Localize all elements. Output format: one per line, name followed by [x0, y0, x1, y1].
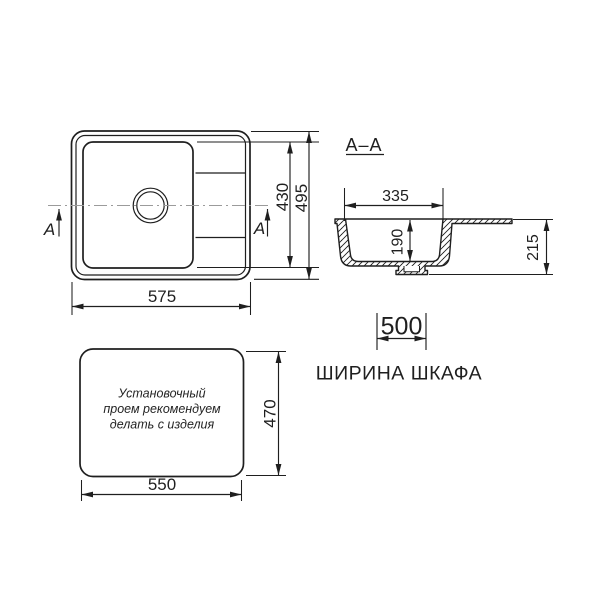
section-view: A–A 335 190 215 [335, 135, 553, 275]
dim-value-335: 335 [382, 188, 409, 205]
dim-value-215: 215 [525, 234, 542, 261]
dimension-cutout-width: 550 [82, 475, 242, 501]
dim-value-430: 430 [273, 183, 292, 211]
cabinet-width-label: ШИРИНА ШКАФА [316, 363, 482, 385]
install-note-line2: проем рекомендуем [103, 402, 221, 416]
section-body [335, 219, 512, 275]
section-marker-letter: A [253, 219, 265, 238]
cabinet-width-note: 500 ШИРИНА ШКАФА [316, 313, 482, 385]
section-marker-left: A [43, 209, 59, 239]
drain-outlet [404, 266, 420, 272]
install-note-line3: делать с изделия [110, 418, 215, 432]
top-view: A A 575 430 495 [43, 131, 319, 315]
install-cutout-view: Установочный проем рекомендуем делать с … [80, 349, 286, 501]
dim-value-495: 495 [292, 184, 311, 212]
dimension-bowl-depth: 190 [390, 220, 411, 262]
section-marker-right: A [253, 209, 268, 238]
dim-value-500: 500 [381, 313, 423, 341]
install-note-line1: Установочный [117, 387, 205, 401]
drawing-canvas: A A 575 430 495 A–A [0, 0, 600, 600]
dim-value-190: 190 [390, 229, 407, 256]
dimension-sink-width: 575 [72, 282, 251, 315]
section-title: A–A [345, 135, 382, 155]
dim-value-470: 470 [261, 399, 280, 427]
dim-value-575: 575 [148, 287, 176, 306]
dim-value-550: 550 [148, 475, 176, 494]
dimension-cutout-depth: 470 [246, 352, 286, 476]
dimension-bowl-width: 335 [345, 188, 444, 221]
section-marker-letter: A [43, 220, 55, 239]
sink-technical-drawing: A A 575 430 495 A–A [0, 0, 600, 600]
